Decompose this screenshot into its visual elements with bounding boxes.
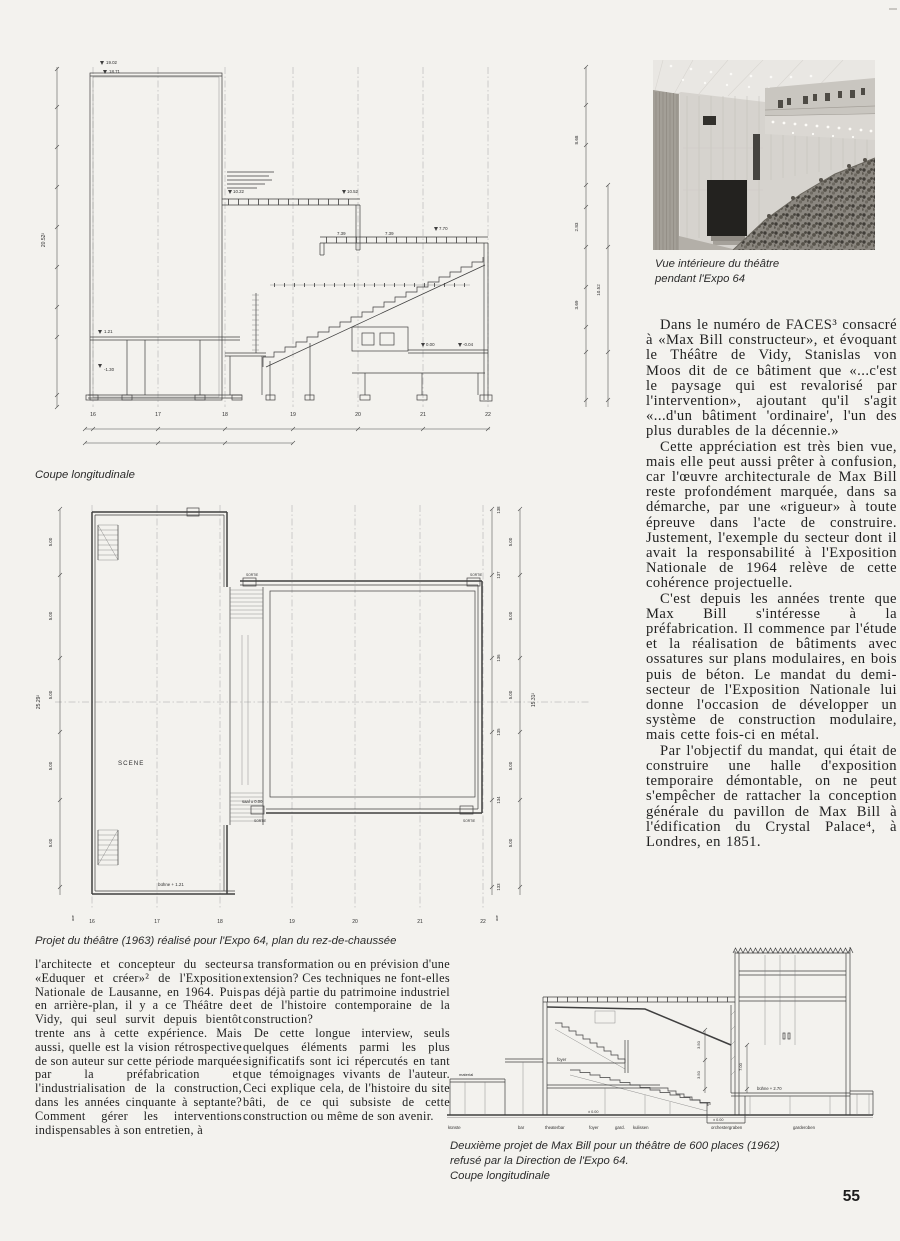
paragraph: Cette appréciation est très bien vue, ma… — [646, 440, 897, 592]
fly-tower-2 — [731, 947, 853, 1115]
spec-note-lines — [227, 172, 274, 188]
svg-text:bar: bar — [518, 1125, 525, 1130]
svg-text:25.29²: 25.29² — [36, 695, 42, 710]
plan-grid-numbers: 16 17 18 19 20 21 22 axe axe — [71, 915, 499, 925]
svg-text:5.00: 5.00 — [48, 838, 53, 847]
svg-text:20: 20 — [355, 412, 361, 418]
stage-door — [707, 180, 747, 245]
svg-text:SORTIE: SORTIE — [463, 819, 476, 823]
svg-text:18: 18 — [222, 412, 228, 418]
left-annexes — [450, 1059, 543, 1115]
stage-stairs — [98, 525, 118, 865]
paragraph: sa transformation ou en prévision d'une … — [243, 958, 450, 1027]
svg-text:5.00: 5.00 — [508, 690, 513, 699]
svg-text:17: 17 — [155, 412, 161, 418]
loudspeaker — [703, 116, 716, 125]
raked-seating-tribune — [263, 257, 485, 400]
section-drawing-coupe-longitudinale: 19.02 18.71 20.52² 10.22 10.52 7.39 7.39… — [30, 55, 640, 460]
svg-text:20.52²: 20.52² — [41, 233, 47, 248]
auditorium-walls — [240, 578, 482, 814]
svg-text:SCENE: SCENE — [118, 760, 144, 767]
svg-text:135: 135 — [496, 728, 501, 736]
svg-text:15.31²: 15.31² — [531, 693, 537, 708]
article-column-bottom-left: l'architecte et concepteur du secteur «E… — [35, 958, 242, 1137]
svg-text:5.00: 5.00 — [48, 761, 53, 770]
wall-slot — [753, 134, 760, 180]
svg-text:SORTIE: SORTIE — [470, 573, 483, 577]
caption-plan: Projet du théâtre (1963) réalisé pour l'… — [35, 934, 495, 949]
article-column-bottom-right: sa transformation ou en prévision d'une … — [243, 958, 450, 1124]
svg-text:18: 18 — [217, 919, 223, 925]
sec2-labels: foyer material bühne + 2.70 ± 0.00 ± 0.0… — [459, 1040, 782, 1122]
print-registration-mark — [889, 8, 897, 10]
svg-text:bühne + 2.70: bühne + 2.70 — [757, 1086, 782, 1091]
svg-text:5.00: 5.00 — [48, 611, 53, 620]
svg-text:22: 22 — [480, 919, 486, 925]
svg-text:5.00: 5.00 — [508, 611, 513, 620]
mid-roof-slab — [222, 190, 360, 250]
svg-text:19.02: 19.02 — [106, 60, 118, 65]
svg-text:-0.04: -0.04 — [463, 342, 474, 347]
svg-text:2.83: 2.83 — [574, 222, 579, 231]
svg-text:-1.30: -1.30 — [104, 367, 115, 372]
svg-text:10.22: 10.22 — [233, 189, 245, 194]
svg-text:18.71: 18.71 — [109, 69, 121, 74]
stage-floor-and-basement — [86, 330, 242, 400]
svg-text:133: 133 — [496, 883, 501, 891]
stage-walls — [92, 508, 235, 894]
svg-text:künste: künste — [448, 1125, 461, 1130]
photo-caption-line2: pendant l'Expo 64 — [655, 272, 880, 287]
svg-text:5.00: 5.00 — [508, 537, 513, 546]
svg-text:garderoben: garderoben — [793, 1125, 816, 1130]
svg-text:7.00: 7.00 — [738, 1062, 743, 1071]
svg-text:10.52: 10.52 — [596, 284, 601, 296]
photo-stage-curtain — [653, 90, 680, 250]
svg-text:theaterbar: theaterbar — [545, 1125, 565, 1130]
photo-caption: Vue intérieure du théâtre pendant l'Expo… — [655, 257, 880, 287]
svg-text:3.50: 3.50 — [696, 1070, 701, 1079]
section-top-labels: 19.02 18.71 20.52² 10.22 10.52 7.39 7.39… — [41, 60, 601, 372]
svg-text:5.00: 5.00 — [48, 690, 53, 699]
svg-text:bühne + 1.21: bühne + 1.21 — [158, 882, 184, 887]
svg-text:5.00: 5.00 — [508, 761, 513, 770]
svg-text:orchestergraben: orchestergraben — [711, 1125, 743, 1130]
paragraph: C'est depuis les années trente que Max B… — [646, 592, 897, 744]
plan-row-numbers: 138 137 136 135 134 133 — [496, 506, 501, 891]
caption-coupe-longitudinale: Coupe longitudinale — [35, 468, 255, 483]
svg-text:7.39: 7.39 — [385, 231, 394, 236]
paragraph: Dans le numéro de FACES³ consacré à «Max… — [646, 318, 897, 440]
svg-text:saal ± 0.00: saal ± 0.00 — [242, 799, 263, 804]
svg-text:136: 136 — [496, 654, 501, 662]
foyer-levels — [547, 1063, 708, 1115]
article-column-right: Dans le numéro de FACES³ consacré à «Max… — [646, 318, 897, 850]
svg-text:10.52: 10.52 — [347, 189, 359, 194]
svg-text:8.68: 8.68 — [574, 135, 579, 144]
svg-text:± 0.00: ± 0.00 — [713, 1118, 724, 1122]
sec2-room-labels: künste bar theaterbar foyer gard. kuliss… — [448, 1125, 816, 1130]
svg-text:21: 21 — [417, 919, 423, 925]
floor-plan-drawing: SCENE saal ± 0.00 bühne + 1.21 SORTIE SO… — [30, 495, 640, 930]
caption-second-project: Deuxième projet de Max Bill pour un théâ… — [450, 1139, 790, 1183]
seating-grid — [270, 591, 475, 797]
svg-text:7.39: 7.39 — [337, 231, 346, 236]
right-wing — [850, 1091, 873, 1115]
svg-text:material: material — [459, 1072, 473, 1077]
plan-grid-lines — [55, 505, 590, 910]
svg-text:SORTIE: SORTIE — [246, 573, 259, 577]
magazine-page: 19.02 18.71 20.52² 10.22 10.52 7.39 7.39… — [0, 0, 900, 1241]
svg-text:5.00: 5.00 — [508, 838, 513, 847]
svg-text:3.69: 3.69 — [574, 300, 579, 309]
main-rake — [570, 1070, 710, 1111]
svg-text:SORTIE: SORTIE — [254, 819, 267, 823]
svg-text:0.00: 0.00 — [426, 342, 435, 347]
svg-text:gard.: gard. — [615, 1125, 625, 1130]
svg-text:21: 21 — [420, 412, 426, 418]
svg-text:foyer: foyer — [557, 1057, 567, 1062]
paragraph: De cette longue interview, seuls quelque… — [243, 1027, 450, 1124]
svg-text:axe: axe — [71, 915, 75, 921]
svg-text:3.50: 3.50 — [696, 1040, 701, 1049]
photo-balcony — [765, 78, 875, 140]
svg-text:137: 137 — [496, 571, 501, 579]
svg-text:138: 138 — [496, 506, 501, 514]
photo-caption-line1: Vue intérieure du théâtre — [655, 257, 880, 272]
understage-rooms — [352, 327, 488, 400]
balcony-rake — [555, 1023, 628, 1073]
theatre-interior-photo — [653, 60, 875, 250]
svg-text:20: 20 — [352, 919, 358, 925]
section-drawing-max-bill-project: foyer material bühne + 2.70 ± 0.00 ± 0.0… — [445, 945, 875, 1135]
svg-text:17: 17 — [154, 919, 160, 925]
proscenium-band — [230, 587, 263, 825]
svg-text:axe: axe — [495, 915, 499, 921]
svg-text:5.00: 5.00 — [48, 537, 53, 546]
page-number: 55 — [800, 1188, 860, 1206]
svg-text:kulissen: kulissen — [633, 1125, 649, 1130]
sec2-dim-lines — [703, 1028, 749, 1093]
svg-text:16: 16 — [89, 919, 95, 925]
paragraph: l'architecte et concepteur du secteur «E… — [35, 958, 242, 1137]
caption-line3: Coupe longitudinale — [450, 1169, 790, 1184]
forestage-and-ladder — [225, 293, 266, 395]
fly-tower — [90, 61, 222, 400]
svg-text:19: 19 — [290, 412, 296, 418]
svg-text:134: 134 — [496, 796, 501, 804]
svg-text:19: 19 — [289, 919, 295, 925]
section-top-grid-numbers: 16 17 18 19 20 21 22 — [90, 412, 491, 418]
svg-text:1.21: 1.21 — [104, 329, 113, 334]
plan-dimension-chains — [58, 507, 522, 895]
svg-text:7.70: 7.70 — [439, 226, 448, 231]
svg-text:16: 16 — [90, 412, 96, 418]
plan-labels: SCENE saal ± 0.00 bühne + 1.21 SORTIE SO… — [36, 537, 537, 887]
paragraph: Par l'objectif du mandat, qui était de c… — [646, 744, 897, 850]
dimension-chains — [55, 65, 610, 445]
caption-line1: Deuxième projet de Max Bill pour un théâ… — [450, 1139, 790, 1154]
hall-roof-and-wall — [543, 997, 735, 1115]
svg-text:22: 22 — [485, 412, 491, 418]
svg-text:foyer: foyer — [589, 1125, 599, 1130]
caption-line2: refusé par la Direction de l'Expo 64. — [450, 1154, 790, 1169]
svg-text:± 0.00: ± 0.00 — [588, 1110, 599, 1114]
